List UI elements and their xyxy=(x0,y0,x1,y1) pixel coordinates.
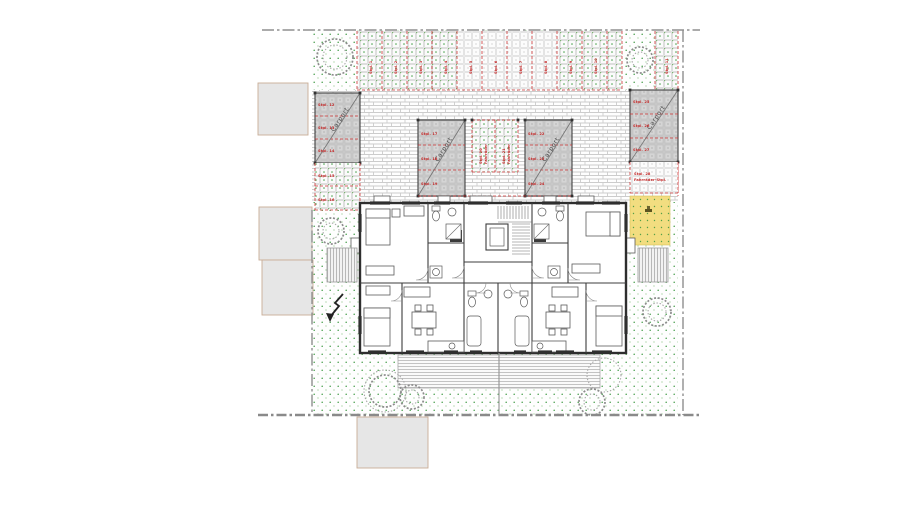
kitchen-counter xyxy=(428,341,464,352)
open-stall-right: Stpl. 28 Fahrräder-Stpl. xyxy=(630,162,678,193)
open-stalls-left: Stpl. 15 Stpl. 16 xyxy=(315,163,360,210)
stall-label: Stpl. 28 xyxy=(634,172,651,176)
sofa xyxy=(552,287,578,297)
sink xyxy=(538,208,546,216)
stall-label: Stpl. 18 xyxy=(421,157,438,161)
stall-label: Stpl. 20 xyxy=(479,148,483,164)
stall-label: Stpl. 12 xyxy=(318,103,335,107)
sofa xyxy=(404,287,430,297)
stall-label: Stpl. 25 xyxy=(633,100,650,104)
stall-label: Stpl. 2 xyxy=(394,60,398,74)
stall-label: Stpl. 14 xyxy=(318,149,335,153)
neighbor-building-1 xyxy=(258,83,308,135)
stall-label: Stpl. 4 xyxy=(444,60,448,74)
stall-label: Stpl. 26 xyxy=(633,124,650,128)
stall-label: Stpl. 22 xyxy=(528,132,545,136)
stall-label: Stpl. 15 xyxy=(318,174,335,178)
carport-right: Carport Stpl. 25 Stpl. 26 Stpl. 27 xyxy=(629,89,680,164)
dining-table xyxy=(546,312,570,328)
sandbox-play-area xyxy=(630,196,670,245)
stall-label: Stpl. 10 xyxy=(594,58,598,74)
dining-table xyxy=(412,312,436,328)
stall-label: Stpl. 6 xyxy=(494,60,498,74)
bathtub xyxy=(515,316,529,346)
stall-label: Fahrräder xyxy=(484,144,488,164)
stall-label: Stpl. 11 xyxy=(665,58,669,74)
building-floorplan xyxy=(351,196,635,354)
stall-label: Stpl. 5 xyxy=(469,60,473,74)
site-plan-svg: Stpl. 1 Stpl. 2 Stpl. 3 Stpl. 4 Stpl. 5 … xyxy=(0,0,900,507)
stall-label: Stpl. 24 xyxy=(528,182,545,186)
stall-label: Stpl. 3 xyxy=(419,60,423,74)
wc xyxy=(432,206,440,211)
stall-label: Fahrräder xyxy=(507,144,511,164)
bathtub xyxy=(467,316,481,346)
stall-label: Stpl. 27 xyxy=(633,148,650,152)
neighbor-building-2 xyxy=(259,207,312,260)
sink xyxy=(448,208,456,216)
stall-label: Stpl. 7 xyxy=(519,60,523,74)
stall-label: Stpl. 19 xyxy=(421,182,438,186)
carport-center-left: Carport Stpl. 17 Stpl. 18 Stpl. 19 xyxy=(417,119,467,198)
stall-label: Stpl. 13 xyxy=(318,126,335,130)
carport-center-right: Carport Stpl. 22 Stpl. 23 Stpl. 24 xyxy=(524,119,574,198)
entrance-porch-left xyxy=(327,248,357,282)
stall-label: Stpl. 8 xyxy=(544,60,548,74)
stall-label: Stpl. 23 xyxy=(528,157,545,161)
open-stalls-center: Stpl. 20 Fahrräder Stpl. 21 Fahrräder xyxy=(471,119,520,172)
neighbor-building-4 xyxy=(357,417,428,468)
floor-plan-canvas: Stpl. 1 Stpl. 2 Stpl. 3 Stpl. 4 Stpl. 5 … xyxy=(0,0,900,507)
stall-label: Stpl. 21 xyxy=(502,148,506,164)
neighbor-building-3 xyxy=(262,260,313,315)
stall-label: Stpl. 9 xyxy=(569,60,573,74)
stall-label: Fahrräder-Stpl. xyxy=(634,178,666,182)
carport-left: Carport Stpl. 12 Stpl. 13 Stpl. 14 xyxy=(314,92,362,165)
stall-label: Stpl. 1 xyxy=(369,60,373,74)
entrance-porch-right xyxy=(638,248,668,282)
wc xyxy=(556,206,564,211)
stall-label: Stpl. 17 xyxy=(421,132,438,136)
stall-label: Stpl. 16 xyxy=(318,198,335,202)
